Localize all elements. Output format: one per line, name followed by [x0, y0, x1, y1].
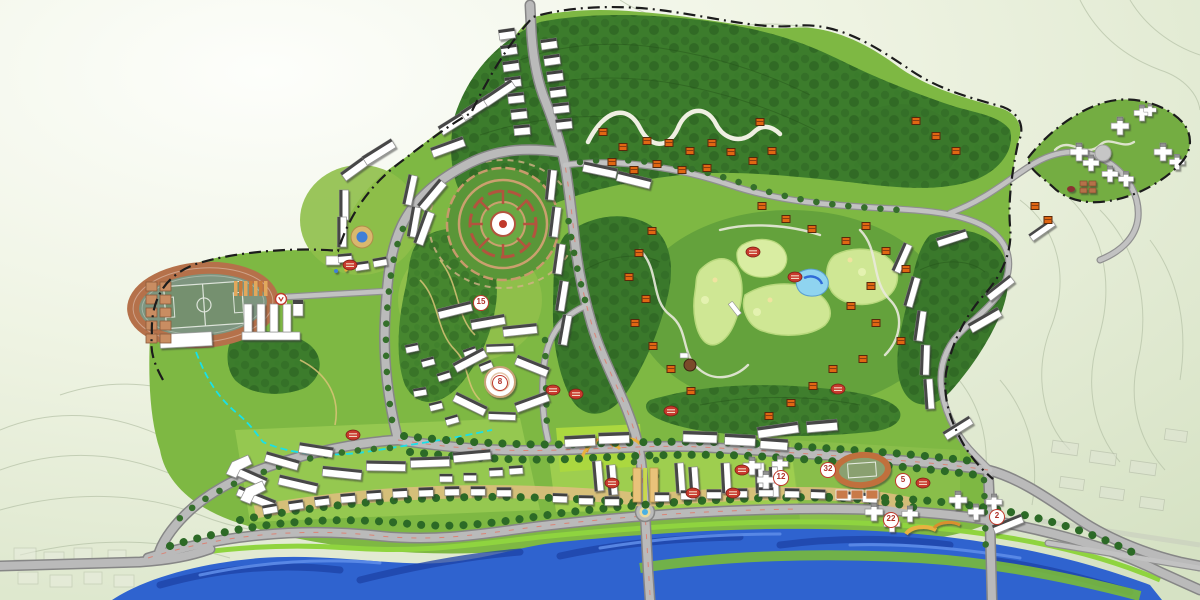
plan-marker: 5 — [895, 473, 911, 489]
plan-marker: 32 — [820, 462, 836, 478]
plan-marker: 8 — [492, 375, 508, 391]
masterplan-canvas: 15812325222 — [0, 0, 1200, 600]
marker-layer: 15812325222 — [0, 0, 1200, 600]
plan-marker: 2 — [989, 509, 1005, 525]
plan-marker: 15 — [473, 295, 489, 311]
plan-marker: 22 — [883, 512, 899, 528]
plan-marker: 12 — [773, 470, 789, 486]
